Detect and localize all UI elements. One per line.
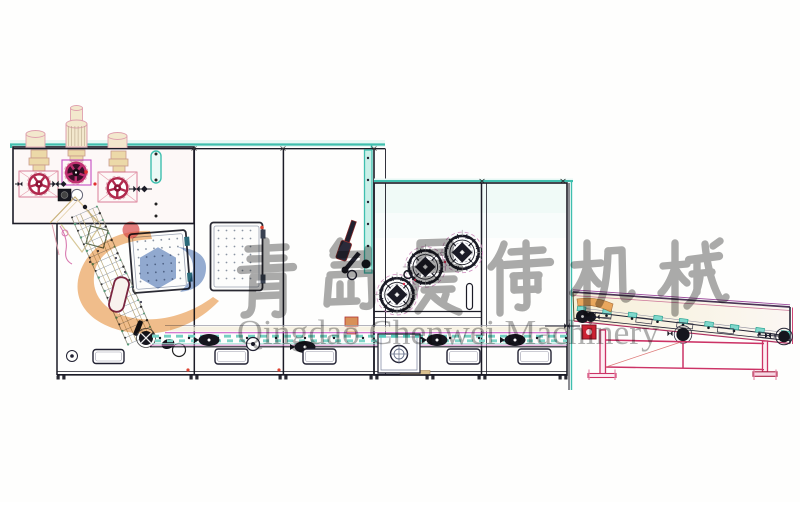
svg-text:Qingdao Chenwei Machinery: Qingdao Chenwei Machinery: [237, 313, 659, 352]
